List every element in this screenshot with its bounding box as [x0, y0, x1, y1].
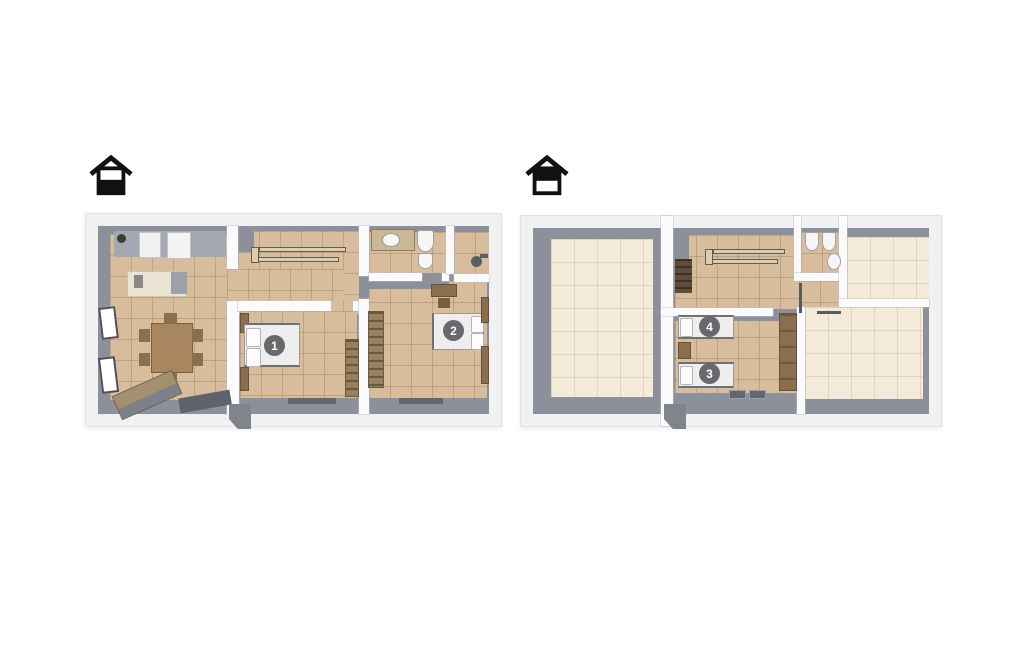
- attic-room-floor: [847, 237, 929, 299]
- pillow: [246, 348, 261, 367]
- wardrobe: [240, 367, 249, 391]
- wall-partition: [794, 273, 842, 281]
- wall-partition: [369, 273, 422, 281]
- pillow: [680, 318, 693, 337]
- staircase: [368, 311, 384, 388]
- dining-chair: [192, 329, 203, 342]
- wall-partition: [797, 307, 805, 414]
- wall-partition: [794, 216, 801, 276]
- shower-arm: [480, 254, 488, 258]
- dining-chair: [164, 313, 177, 324]
- window: [288, 398, 336, 404]
- pillow: [246, 328, 261, 347]
- ground-floor-plan: 1 2: [85, 213, 502, 427]
- wall-partition: [442, 273, 449, 281]
- kitchen-appliance: [171, 272, 187, 294]
- wall-partition: [454, 274, 489, 282]
- dining-chair: [192, 353, 203, 366]
- landing-floor: [675, 235, 799, 309]
- staircase: [345, 339, 359, 397]
- roof-window: [749, 390, 766, 399]
- roof-window: [729, 390, 746, 399]
- dining-chair: [139, 353, 150, 366]
- nightstand: [678, 342, 691, 359]
- attic-room-floor: [805, 307, 923, 399]
- wall-partition: [227, 226, 238, 269]
- upper-floor-plan: 4 3: [520, 215, 942, 427]
- plant: [117, 234, 126, 243]
- pillow: [680, 366, 693, 385]
- room-number-badge: 2: [443, 320, 464, 341]
- sink-basin: [382, 233, 400, 247]
- sink-basin: [827, 253, 841, 270]
- bidet: [822, 232, 836, 251]
- corridor-floor: [227, 269, 344, 301]
- kitchen-sink: [134, 275, 143, 288]
- house-ground-floor-icon: [88, 154, 134, 198]
- stair-opening: [675, 259, 692, 293]
- floor-plan-image: 1 2: [0, 0, 1024, 652]
- stair-railing: [705, 259, 778, 264]
- kitchen-appliance: [139, 232, 161, 258]
- railing-post: [705, 249, 713, 265]
- wall-partition: [359, 226, 369, 276]
- toilet: [417, 230, 434, 252]
- stair-railing: [251, 257, 339, 262]
- stair-railing: [713, 249, 785, 254]
- desk-chair: [438, 298, 450, 308]
- desk: [431, 284, 457, 297]
- bidet: [418, 253, 433, 269]
- railing-post: [251, 247, 259, 263]
- shower-room-floor: [454, 232, 489, 274]
- wall-partition: [446, 226, 454, 274]
- window: [399, 398, 443, 404]
- toilet: [805, 232, 819, 251]
- porch-stub: [229, 404, 251, 429]
- wardrobe: [481, 297, 489, 323]
- wardrobe: [481, 346, 489, 384]
- room-number-badge: 3: [699, 363, 720, 384]
- wall-partition: [661, 216, 673, 426]
- dining-chair: [139, 329, 150, 342]
- door-frame: [817, 311, 841, 314]
- wardrobe: [779, 313, 797, 391]
- kitchen-appliance: [167, 232, 191, 259]
- house-upper-floor-icon: [524, 154, 570, 198]
- wall-partition: [238, 301, 331, 311]
- attic-room-floor: [551, 239, 653, 397]
- dining-table: [151, 323, 193, 373]
- stair-railing: [259, 247, 346, 252]
- room-number-badge: 4: [699, 316, 720, 337]
- room-number-badge: 1: [264, 335, 285, 356]
- door-frame: [799, 283, 802, 313]
- wall-partition: [839, 299, 929, 307]
